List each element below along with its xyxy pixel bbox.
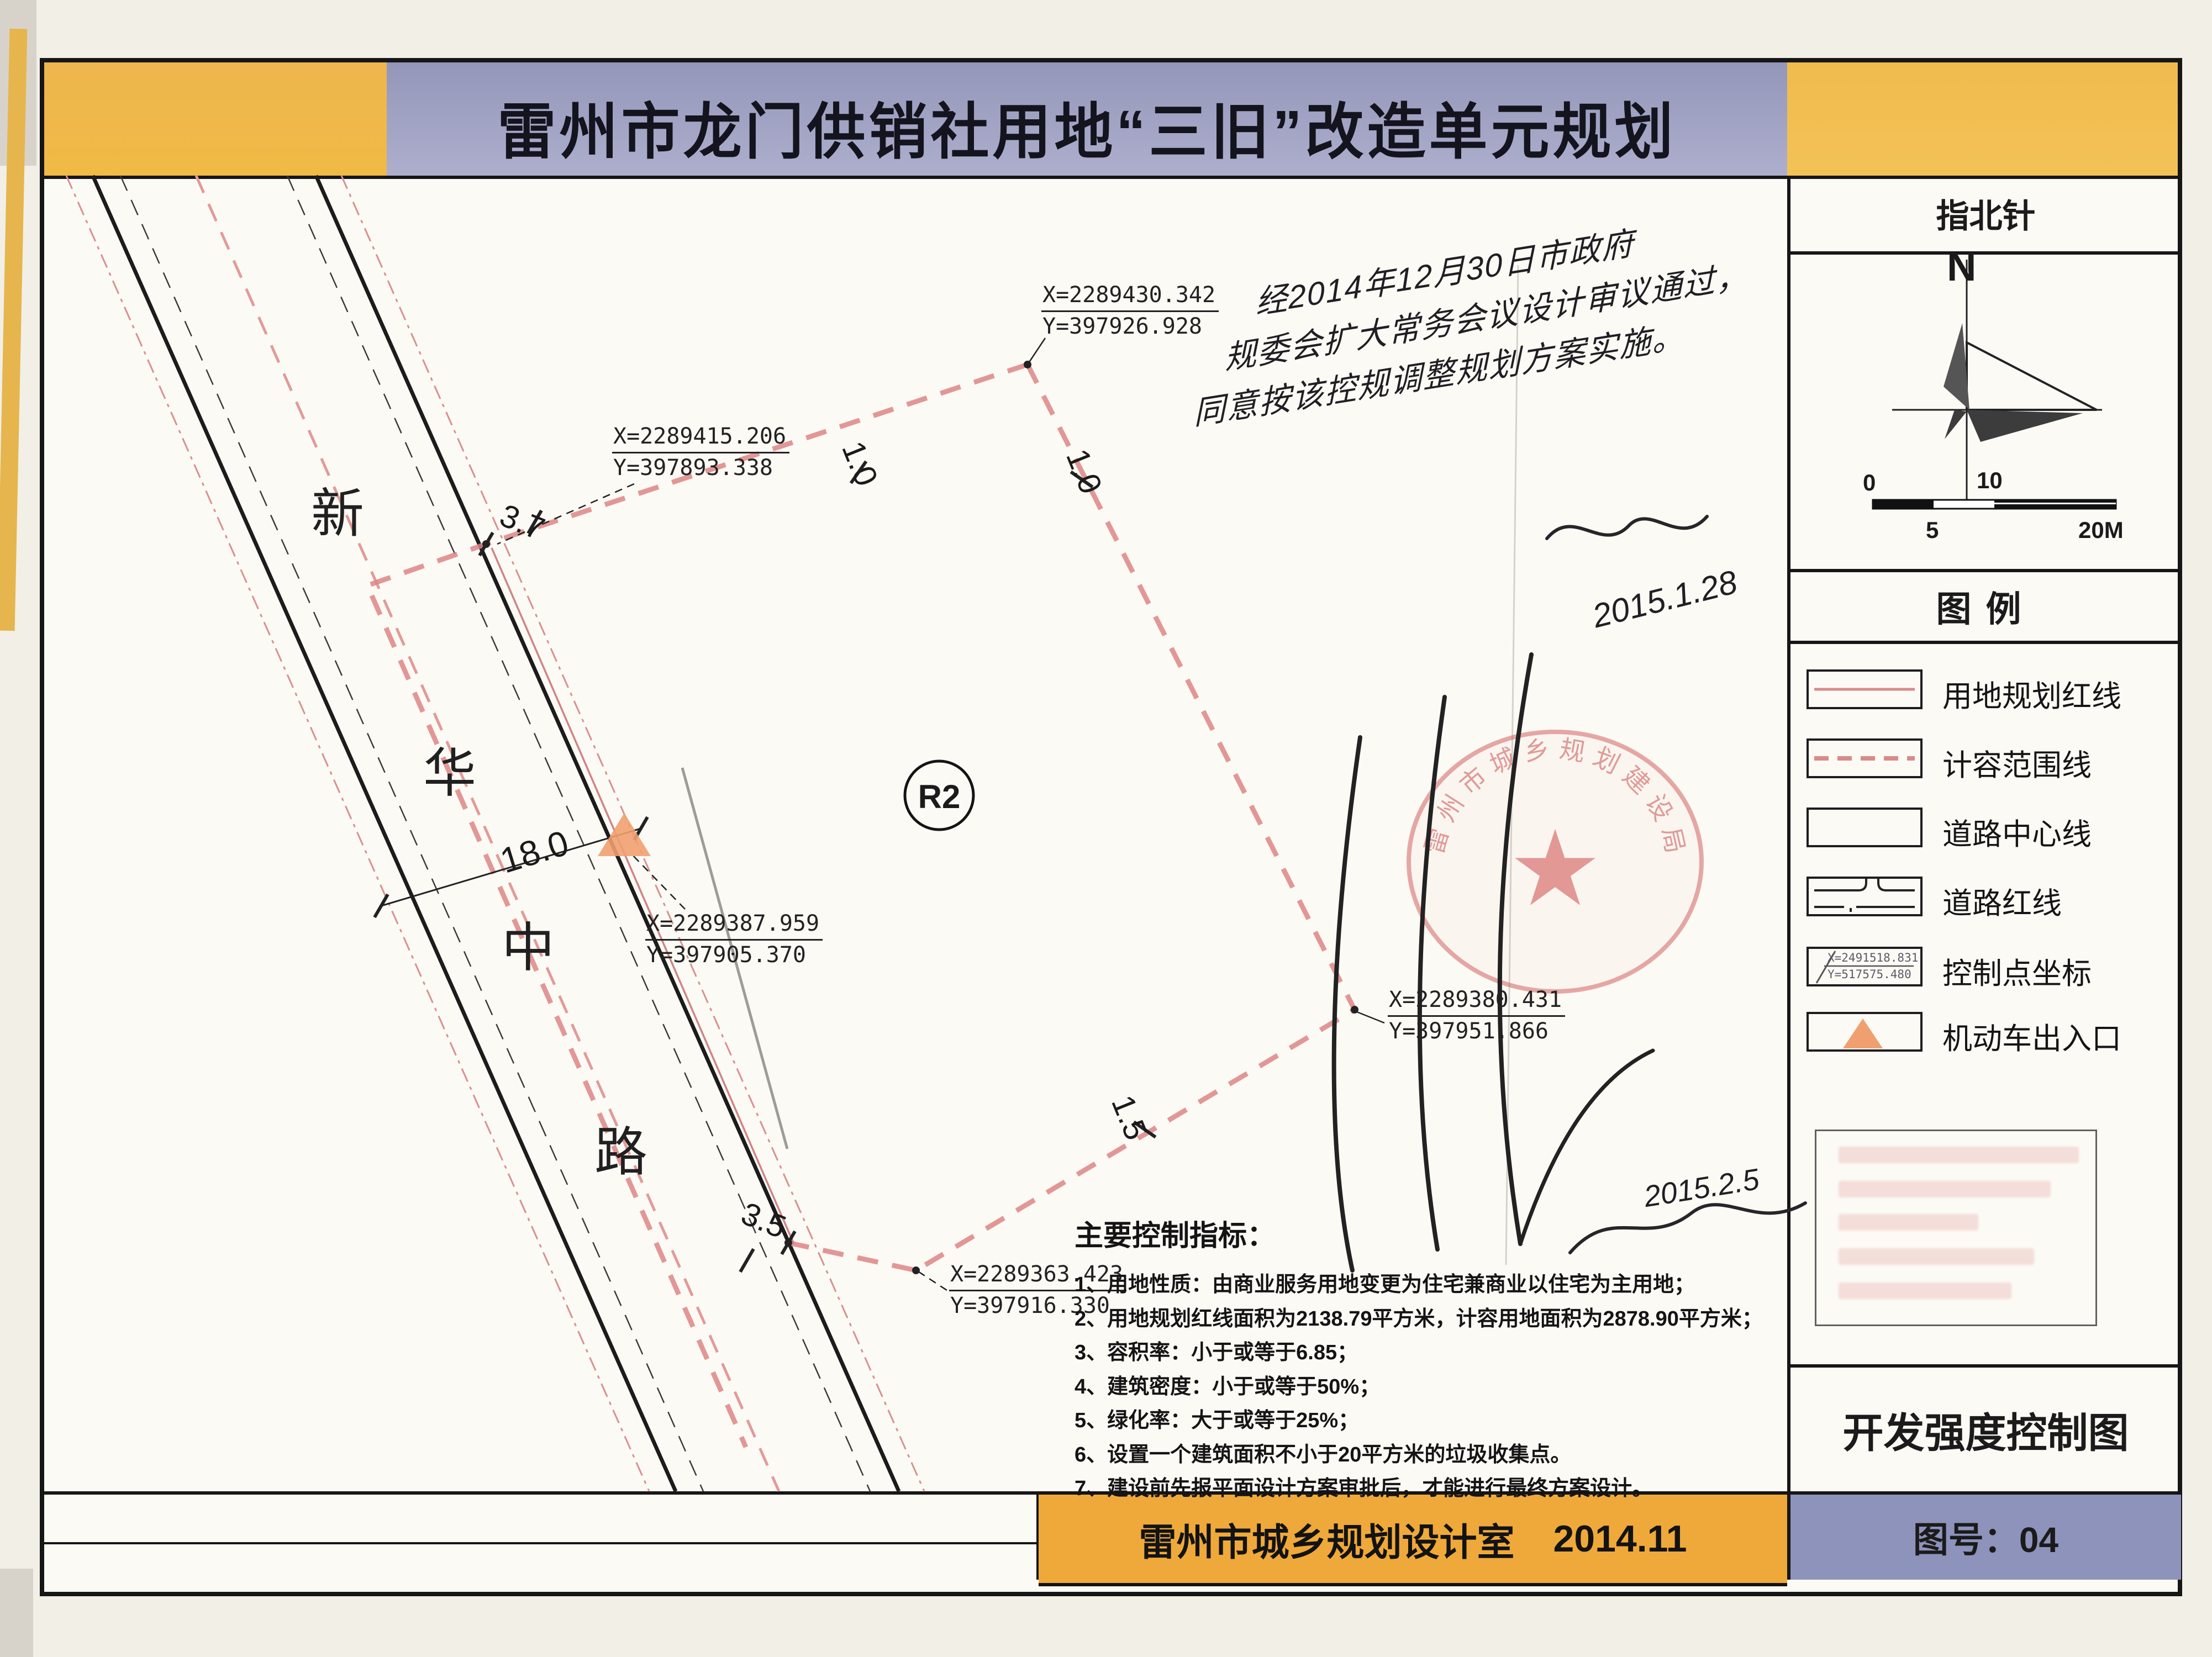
road-edge-right [316, 176, 899, 1491]
coord-label: X=2289387.959 Y=397905.370 [645, 911, 823, 968]
legend-item-label: 控制点坐标 [1942, 949, 2092, 993]
road-name-char: 新 [311, 471, 364, 547]
footer-date: 2014.11 [1553, 1517, 1687, 1560]
legend-coord-x: X=2491518.831 [1827, 951, 1918, 964]
north-arrow-dart-outline [1967, 342, 2097, 410]
legend-coord-y: Y=517575.480 [1827, 968, 1911, 981]
signature-scribble [1547, 516, 1707, 539]
road-name-char: 路 [594, 1109, 647, 1186]
footer-org: 雷州市城乡规划设计室 [1139, 1512, 1514, 1566]
scale-tick-10: 10 [1977, 467, 2003, 494]
control-point [912, 1267, 920, 1274]
drawing-title: 开发强度控制图 [1790, 1364, 2181, 1491]
scale-tick-20m: 20M [2078, 517, 2124, 543]
vehicle-entrance-triangle [598, 813, 651, 856]
legend-item-label: 用地规划红线 [1942, 672, 2121, 715]
coord-leader [1357, 1012, 1384, 1023]
indicator-item: 6、设置一个建筑面积不小于20平方米的垃圾收集点。 [1075, 1438, 1782, 1473]
coord-y: Y=397893.338 [612, 453, 789, 481]
coord-y: Y=397926.928 [1041, 312, 1219, 339]
scale-tick-0: 0 [1863, 469, 1876, 496]
scanned-planning-sheet: 雷州市龙门供销社用地“三旧”改造单元规划 指北针 图例 开发强度控制图 图号：0… [0, 0, 2212, 1657]
coord-x: X=2289430.342 [1041, 283, 1219, 312]
indicator-item: 5、绿化率：大于或等于25%； [1075, 1404, 1782, 1438]
coord-leader [1028, 338, 1045, 365]
parcel-boundary-dashed [367, 365, 1028, 1447]
coord-y: Y=397905.370 [645, 941, 823, 968]
legend-sample-red-line [1807, 669, 1923, 709]
legend-sample-centerline [1807, 808, 1923, 847]
sheet-title: 雷州市龙门供销社用地“三旧”改造单元规划 [387, 82, 1787, 171]
coord-label: X=2289380.431 Y=397951.866 [1388, 988, 1565, 1044]
signature-scribble [1334, 737, 1360, 1270]
legend-header: 图例 [1790, 572, 2181, 644]
indicators-block: 主要控制指标： 1、用地性质：由商业服务用地变更为住宅兼商业以住宅为主用地； 2… [1075, 1212, 1782, 1506]
coord-y: Y=397951.866 [1388, 1017, 1565, 1044]
legend-item-label: 机动车出入口 [1942, 1014, 2121, 1058]
indicators-heading: 主要控制指标： [1075, 1212, 1782, 1254]
faint-certificate-stamp [1815, 1130, 2097, 1326]
coord-x: X=2289415.206 [612, 424, 789, 453]
road-edge-left [93, 176, 676, 1491]
indicator-item: 1、用地性质：由商业服务用地变更为住宅兼商业以住宅为主用地； [1075, 1268, 1782, 1302]
dimension-tick [375, 894, 388, 917]
coord-x: X=2289387.959 [645, 911, 823, 941]
road-name-char: 华 [423, 730, 476, 807]
north-arrow-fin [1945, 410, 1967, 439]
scale-tick-5: 5 [1926, 517, 1939, 543]
coord-leader [918, 1271, 947, 1290]
indicator-item: 7、建设前先报平面设计方案审批后，才能进行最终方案设计。 [1075, 1472, 1782, 1506]
north-arrow-fin [1944, 323, 1969, 410]
indicator-item: 2、用地规划红线面积为2138.79平方米，计容用地面积为2878.90平方米； [1075, 1302, 1782, 1337]
scale-bar-seg [1873, 500, 1934, 509]
legend-item-label: 道路红线 [1942, 879, 2062, 922]
coord-label: X=2289430.342 Y=397926.928 [1041, 283, 1219, 339]
road-centerline [196, 176, 779, 1491]
parcel-boundary-dashed [788, 365, 1355, 1270]
road-name-char: 中 [502, 905, 555, 981]
sheet-number: 图号：04 [1790, 1491, 2181, 1580]
legend-sample-road-redline [1807, 877, 1923, 916]
scale-bar-stripe [1994, 503, 2116, 504]
coord-x: X=2289380.431 [1388, 988, 1565, 1017]
legend-item-label: 计容范围线 [1942, 741, 2092, 784]
indicator-item: 4、建筑密度：小于或等于50%； [1075, 1370, 1782, 1405]
coord-label: X=2289415.206 Y=397893.338 [612, 424, 789, 481]
north-letter: N [1947, 243, 1976, 290]
legend-sample-entrance [1807, 1012, 1923, 1052]
compass-header: 指北针 [1790, 176, 2181, 255]
control-point [482, 540, 490, 548]
road-lane-right [287, 176, 870, 1491]
dimension-tick [740, 1249, 754, 1272]
indicator-item: 3、容积率：小于或等于6.85； [1075, 1336, 1782, 1370]
stamp-star-icon: ★ [1508, 810, 1602, 927]
zone-label: R2 [910, 778, 968, 816]
north-arrow-dart-fill [1967, 410, 2083, 442]
legend-sample-dashed-line [1807, 738, 1923, 778]
legend-item-label: 道路中心线 [1942, 810, 2092, 853]
control-point [784, 1239, 792, 1247]
